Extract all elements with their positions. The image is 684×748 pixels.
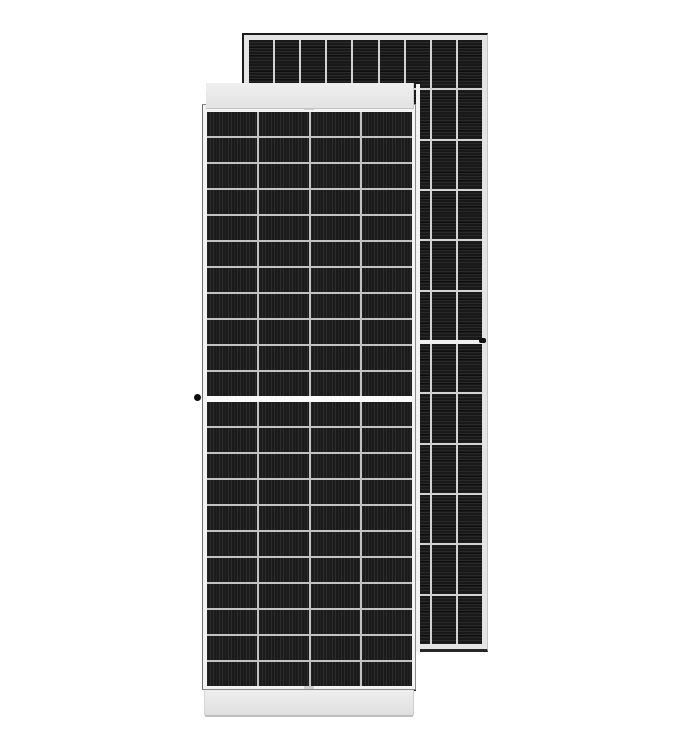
solar-cell [362,294,412,318]
solar-cell [432,292,456,340]
solar-cell [207,138,257,162]
solar-cell [259,216,309,240]
solar-cell [259,294,309,318]
solar-cell [311,112,361,136]
solar-cell [259,402,309,426]
solar-cell [311,662,361,686]
solar-cell [207,372,257,396]
solar-cell [259,138,309,162]
solar-cell [432,90,456,138]
solar-cell [311,402,361,426]
solar-cell [362,480,412,504]
solar-cell [362,112,412,136]
solar-cell [301,40,325,88]
solar-cell [259,242,309,266]
solar-cell [458,241,482,289]
solar-cell [458,596,482,644]
solar-cell [207,662,257,686]
solar-cell [311,428,361,452]
solar-cell [259,584,309,608]
solar-cell [362,610,412,634]
solar-cell [207,190,257,214]
solar-cell [311,268,361,292]
solar-cell [259,480,309,504]
solar-cell [207,112,257,136]
front-panel-grounding-dot [194,394,201,401]
solar-cell [311,164,361,188]
solar-cell [362,372,412,396]
solar-cell [406,40,430,88]
solar-cell [207,480,257,504]
solar-cell [249,40,273,88]
solar-cell [458,191,482,239]
solar-cell [362,268,412,292]
solar-cell [259,346,309,370]
solar-cell [362,506,412,530]
front-panel-lower-half [207,402,412,686]
solar-cell [432,596,456,644]
solar-cell [311,294,361,318]
solar-cell [311,584,361,608]
solar-cell [259,558,309,582]
solar-cell [432,545,456,593]
solar-cell [259,190,309,214]
solar-cell [311,242,361,266]
solar-cell [207,242,257,266]
solar-cell [432,495,456,543]
product-photo-two-solar-panels [0,0,684,748]
solar-cell [327,40,351,88]
solar-cell [362,346,412,370]
solar-cell [207,454,257,478]
solar-cell [259,112,309,136]
solar-cell [207,558,257,582]
solar-cell [207,164,257,188]
solar-cell [432,141,456,189]
solar-cell [207,216,257,240]
solar-cell [311,138,361,162]
solar-cell [311,480,361,504]
front-solar-panel [202,104,416,690]
solar-cell [275,40,299,88]
solar-cell [311,216,361,240]
solar-cell [259,532,309,556]
solar-cell [259,506,309,530]
solar-cell [259,320,309,344]
solar-cell [362,216,412,240]
solar-cell [311,610,361,634]
solar-cell [362,402,412,426]
solar-cell [362,190,412,214]
solar-cell [311,506,361,530]
solar-cell [311,372,361,396]
front-frame-center-mark-bottom [304,686,314,689]
solar-cell [362,636,412,660]
solar-cell [362,138,412,162]
front-panel-cell-area [207,112,412,686]
solar-cell [458,495,482,543]
solar-cell [311,320,361,344]
solar-cell [458,292,482,340]
solar-cell [362,320,412,344]
solar-cell [207,584,257,608]
solar-cell [207,268,257,292]
solar-cell [362,584,412,608]
solar-cell [259,662,309,686]
solar-cell [259,610,309,634]
solar-cell [207,532,257,556]
solar-cell [458,40,482,88]
solar-cell [432,40,456,88]
solar-cell [458,90,482,138]
front-panel-upper-half [207,112,412,396]
solar-cell [380,40,404,88]
solar-cell [432,191,456,239]
solar-cell [259,268,309,292]
solar-cell [362,454,412,478]
solar-cell [362,428,412,452]
solar-cell [311,190,361,214]
solar-cell [311,454,361,478]
solar-cell [207,402,257,426]
solar-cell [207,428,257,452]
solar-cell [362,164,412,188]
front-panel-top-frame-bar [206,83,414,109]
solar-cell [362,242,412,266]
solar-cell [259,164,309,188]
solar-cell [207,320,257,344]
solar-cell [362,558,412,582]
solar-cell [207,346,257,370]
solar-cell [311,636,361,660]
solar-cell [259,454,309,478]
solar-cell [311,346,361,370]
solar-cell [362,662,412,686]
solar-cell [207,294,257,318]
solar-cell [362,532,412,556]
rear-panel-grounding-dot [479,338,486,343]
solar-cell [458,344,482,392]
solar-cell [207,506,257,530]
solar-cell [259,428,309,452]
solar-cell [259,372,309,396]
front-panel-bottom-frame-bar [204,690,414,717]
solar-cell [458,445,482,493]
solar-cell [207,636,257,660]
solar-cell [353,40,377,88]
solar-cell [432,241,456,289]
solar-cell [432,445,456,493]
solar-cell [432,394,456,442]
solar-cell [458,545,482,593]
solar-cell [458,394,482,442]
solar-cell [432,344,456,392]
solar-cell [311,532,361,556]
solar-cell [259,636,309,660]
panel-gap-highlight [416,84,420,652]
solar-cell [207,610,257,634]
solar-cell [458,141,482,189]
solar-cell [311,558,361,582]
